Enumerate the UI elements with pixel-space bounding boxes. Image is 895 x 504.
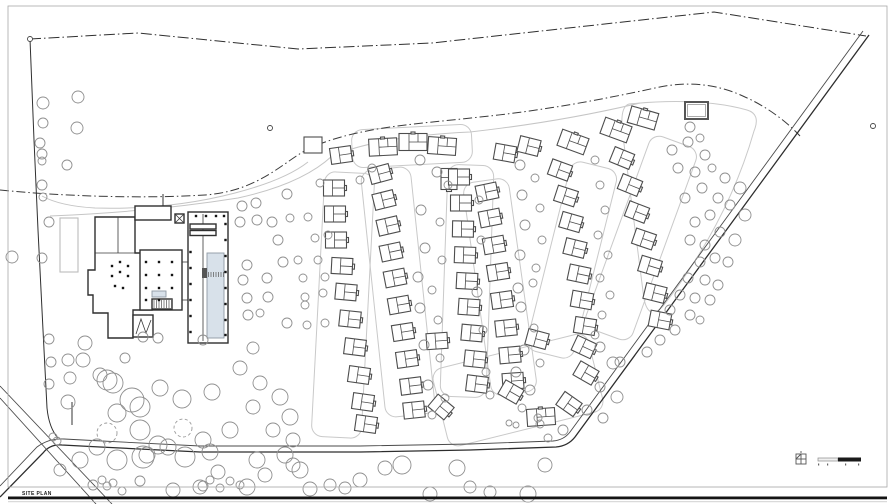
- house-unit: [304, 137, 322, 153]
- column-dot: [205, 215, 207, 217]
- house-unit: [490, 290, 515, 309]
- tree-circle: [299, 274, 307, 282]
- tree-circle: [680, 193, 690, 203]
- column-dot: [158, 287, 160, 289]
- column-dot: [224, 239, 226, 241]
- tree-circle: [304, 213, 312, 221]
- tree-circle: [655, 335, 665, 345]
- house-unit: [399, 132, 427, 151]
- house-unit: [329, 145, 354, 164]
- house-unit: [478, 208, 504, 228]
- legend-layer: [796, 452, 861, 466]
- tree-circle: [282, 318, 292, 328]
- house-unit: [454, 247, 478, 264]
- house-unit: [324, 180, 347, 196]
- building-entry-block: [135, 206, 171, 220]
- house-door: [665, 293, 668, 298]
- house-unit: [403, 401, 428, 419]
- tree-circle: [249, 452, 265, 468]
- house-door: [485, 358, 488, 363]
- house-door: [589, 274, 592, 279]
- site-boundary-left: [30, 39, 58, 438]
- tree-circle: [697, 183, 707, 193]
- proposed-tree-circle: [174, 419, 192, 437]
- pavilion: [685, 102, 708, 119]
- house-unit: [570, 290, 595, 310]
- column-dot: [119, 261, 121, 263]
- tree-circle: [238, 275, 248, 285]
- column-dot: [224, 223, 226, 225]
- tree-circle: [107, 450, 127, 470]
- column-dot: [171, 274, 173, 276]
- house-unit: [461, 324, 485, 342]
- tree-circle: [216, 484, 224, 492]
- house-unit: [426, 332, 450, 350]
- tree-circle: [713, 193, 723, 203]
- tree-circle: [316, 179, 324, 187]
- house-door: [394, 195, 397, 200]
- column-dot: [224, 271, 226, 273]
- tree-circle: [515, 250, 525, 260]
- tree-circle: [263, 292, 273, 302]
- house-door: [504, 240, 507, 245]
- house-door: [497, 187, 500, 192]
- tree-circle: [153, 333, 163, 343]
- column-dot: [224, 334, 226, 336]
- tree-circle: [130, 420, 150, 440]
- house-unit: [573, 316, 598, 335]
- house-door: [523, 378, 525, 383]
- house-unit: [643, 283, 669, 304]
- tree-circle: [211, 465, 225, 479]
- tree-circle: [356, 176, 364, 184]
- house-unit: [557, 128, 590, 155]
- tree-circle: [515, 160, 525, 170]
- house-unit: [368, 136, 397, 156]
- tree-circle: [436, 218, 444, 226]
- house-unit: [482, 235, 507, 255]
- tree-circle: [88, 480, 98, 490]
- house-unit: [517, 136, 543, 157]
- column-dot: [224, 287, 226, 289]
- north-symbol: [796, 452, 806, 464]
- tree-circle: [517, 190, 527, 200]
- house-unit: [449, 169, 472, 185]
- tree-circle: [538, 236, 546, 244]
- walkway-loop: [360, 166, 436, 418]
- column-dot: [224, 319, 226, 321]
- tree-circle: [538, 458, 552, 472]
- tree-circle: [513, 283, 523, 293]
- column-dot: [111, 275, 113, 277]
- tree-circle: [37, 253, 47, 263]
- tree-circle: [303, 482, 317, 496]
- boundary-marker: [268, 126, 273, 131]
- tree-circle: [282, 189, 292, 199]
- tree-circle: [506, 420, 512, 426]
- house-unit: [631, 228, 658, 251]
- house-unit: [563, 238, 589, 259]
- house-unit: [624, 201, 651, 224]
- site-plan-drawing: SITE PLAN: [0, 0, 895, 504]
- house-unit: [354, 415, 379, 434]
- column-dot: [224, 255, 226, 257]
- house-door: [508, 268, 511, 273]
- tree-circle: [233, 361, 247, 375]
- house-door: [487, 383, 490, 388]
- tree-circle: [598, 413, 608, 423]
- tree-circle: [607, 357, 619, 369]
- tree-circle: [37, 97, 49, 109]
- tree-circle: [520, 486, 536, 502]
- tree-circle: [324, 479, 336, 491]
- house-door: [515, 152, 518, 157]
- tree-circle: [267, 217, 277, 227]
- house-door: [472, 201, 474, 206]
- column-dot: [171, 287, 173, 289]
- house-unit: [427, 135, 456, 155]
- column-dot: [114, 285, 116, 287]
- house-unit: [475, 182, 501, 202]
- tree-circle: [393, 456, 411, 474]
- house-door: [475, 253, 477, 258]
- tree-circle: [700, 150, 710, 160]
- tree-circle: [595, 342, 605, 352]
- tree-circle: [428, 411, 436, 419]
- tree-circle: [226, 477, 234, 485]
- tree-circle: [37, 180, 47, 190]
- tree-circle: [286, 458, 300, 472]
- boundary-marker: [871, 124, 876, 129]
- house-door: [401, 247, 404, 252]
- tree-circle: [378, 461, 392, 475]
- tree-circle: [611, 391, 623, 403]
- column-dot: [171, 261, 173, 263]
- tree-circle: [242, 293, 252, 303]
- scale-tick: [818, 464, 819, 466]
- house-door: [447, 338, 449, 343]
- tree-circle: [729, 234, 741, 246]
- tree-circle: [266, 423, 280, 437]
- tree-circle: [71, 122, 83, 134]
- house-door: [670, 320, 673, 325]
- pool-step: [202, 268, 207, 278]
- tree-circle: [520, 220, 530, 230]
- canopy-bar: [190, 231, 216, 236]
- tree-circle: [61, 395, 75, 409]
- column-dot: [145, 274, 147, 276]
- column-dot: [145, 261, 147, 263]
- tree-circle: [321, 319, 329, 327]
- drawing-sheet: SITE PLAN: [0, 0, 895, 504]
- houses-layer: [304, 105, 674, 434]
- tree-circle: [516, 302, 526, 312]
- house-door: [470, 175, 472, 180]
- tree-circle: [301, 293, 309, 301]
- tree-circle: [416, 205, 426, 215]
- house-unit: [335, 283, 359, 301]
- house-door: [539, 146, 542, 151]
- house-unit: [609, 147, 636, 170]
- house-unit: [554, 185, 581, 207]
- boundary-marker: [28, 37, 33, 42]
- proposed-tree-circle: [97, 423, 117, 443]
- house-unit: [617, 174, 644, 197]
- tree-circle: [76, 353, 90, 367]
- tree-circle: [38, 118, 48, 128]
- tree-circle: [253, 376, 267, 390]
- tree-circle: [166, 483, 180, 497]
- tree-circle: [64, 372, 76, 384]
- boundary-layer: [30, 12, 866, 438]
- tree-circle: [723, 257, 733, 267]
- house-unit: [428, 394, 456, 421]
- tree-circle: [62, 160, 72, 170]
- column-dot: [189, 315, 191, 317]
- tree-circle: [175, 447, 195, 467]
- house-door: [477, 279, 479, 284]
- tree-circle: [72, 91, 84, 103]
- tree-circle: [256, 309, 264, 317]
- house-door: [538, 407, 542, 409]
- house-door: [424, 406, 427, 411]
- tree-circle: [278, 257, 288, 267]
- house-door: [373, 401, 376, 406]
- tree-circle: [37, 149, 47, 159]
- tree-circle: [529, 279, 537, 287]
- tree-circle: [734, 182, 746, 194]
- house-unit: [326, 232, 349, 248]
- tree-circle: [46, 357, 56, 367]
- house-unit: [344, 338, 369, 357]
- column-dot: [158, 299, 160, 301]
- tree-circle: [173, 390, 191, 408]
- tree-circle: [120, 388, 144, 412]
- column-dot: [189, 331, 191, 333]
- tree-circle: [236, 481, 244, 489]
- house-door: [473, 227, 475, 232]
- column-dot: [224, 303, 226, 305]
- canopy-bar: [190, 224, 216, 229]
- tree-circle: [685, 235, 695, 245]
- house-unit: [573, 361, 601, 386]
- drawing-title: SITE PLAN: [22, 491, 52, 497]
- tree-circle: [243, 310, 253, 320]
- house-door: [441, 136, 445, 138]
- column-dot: [189, 283, 191, 285]
- house-unit: [325, 206, 348, 222]
- tree-circle: [258, 468, 272, 482]
- tree-circle: [423, 380, 433, 390]
- tree-circle: [591, 156, 599, 164]
- house-unit: [391, 322, 416, 341]
- tree-circle: [739, 209, 751, 221]
- house-door: [479, 305, 481, 310]
- house-door: [347, 238, 349, 243]
- house-door: [380, 137, 384, 139]
- tree-circle: [525, 385, 535, 395]
- house-door: [405, 273, 408, 278]
- house-unit: [486, 262, 511, 281]
- title-bar-rule: [8, 497, 887, 500]
- house-door: [592, 299, 595, 304]
- tree-circle: [696, 316, 704, 324]
- house-door: [500, 213, 503, 218]
- house-unit: [567, 264, 593, 284]
- house-unit: [556, 391, 584, 417]
- tree-circle: [675, 290, 685, 300]
- house-door: [345, 186, 347, 191]
- house-door: [595, 325, 598, 330]
- column-dot: [189, 267, 191, 269]
- house-door: [376, 423, 379, 428]
- tree-circle: [428, 286, 436, 294]
- tree-circle: [135, 476, 145, 486]
- tree-circle: [594, 231, 602, 239]
- tree-circle: [294, 256, 302, 264]
- house-door: [643, 108, 647, 111]
- tree-circle: [685, 310, 695, 320]
- tree-circle: [420, 243, 430, 253]
- tree-circle: [582, 405, 592, 415]
- house-unit: [464, 350, 489, 368]
- tree-circle: [606, 291, 614, 299]
- parking-area: [60, 218, 78, 272]
- tree-circle: [670, 325, 680, 335]
- tree-circle: [598, 311, 606, 319]
- tree-circle: [273, 235, 283, 245]
- tree-circle: [690, 217, 700, 227]
- tree-circle: [708, 164, 716, 172]
- tree-circle: [518, 404, 526, 412]
- house-unit: [339, 310, 364, 328]
- house-unit: [547, 159, 574, 182]
- house-unit: [559, 211, 586, 233]
- house-door: [512, 296, 515, 301]
- tree-circle: [720, 173, 730, 183]
- tree-circle: [642, 347, 652, 357]
- house-unit: [458, 298, 482, 316]
- tree-circle: [272, 389, 288, 405]
- scale-tick: [845, 464, 846, 466]
- tree-circle: [286, 214, 294, 222]
- house-unit: [331, 257, 355, 274]
- house-door: [365, 346, 368, 351]
- tree-circle: [247, 342, 259, 354]
- tree-circle: [262, 273, 272, 283]
- tree-circle: [339, 482, 351, 494]
- tree-circle: [321, 273, 329, 281]
- column-dot: [111, 265, 113, 267]
- house-door: [351, 151, 354, 156]
- column-dot: [158, 261, 160, 263]
- tree-circle: [558, 425, 568, 435]
- tree-circle: [130, 397, 150, 417]
- house-door: [417, 355, 420, 360]
- tree-circle: [596, 181, 604, 189]
- tree-circle: [615, 357, 625, 367]
- tree-circle: [252, 215, 262, 225]
- tree-circle: [301, 301, 309, 309]
- tree-circle: [710, 253, 720, 263]
- house-door: [447, 190, 452, 192]
- column-dot: [127, 265, 129, 267]
- tree-circle: [532, 264, 540, 272]
- house-unit: [400, 377, 425, 396]
- tree-circle: [705, 210, 715, 220]
- scale-bar: [818, 458, 861, 466]
- tree-circle: [242, 260, 252, 270]
- tree-circle: [246, 400, 260, 414]
- house-door: [516, 324, 519, 329]
- house-unit: [379, 242, 405, 262]
- tree-circle: [486, 391, 494, 399]
- house-unit: [347, 366, 372, 385]
- house-door: [360, 318, 363, 323]
- tree-circle: [282, 409, 298, 425]
- tree-circle: [149, 436, 167, 454]
- tree-circle: [35, 138, 45, 148]
- tree-circle: [415, 155, 425, 165]
- scale-tick: [858, 464, 859, 466]
- column-dot: [158, 274, 160, 276]
- tree-circle: [62, 354, 74, 366]
- house-unit: [466, 375, 491, 394]
- house-unit: [452, 221, 475, 237]
- tree-circle: [705, 295, 715, 305]
- house-door: [398, 221, 401, 226]
- tree-circle: [415, 303, 425, 313]
- house-door: [369, 374, 372, 379]
- house-door: [585, 248, 588, 253]
- column-dot: [195, 215, 197, 217]
- tree-circle: [120, 353, 130, 363]
- tree-circle: [72, 452, 88, 468]
- tree-circle: [667, 145, 677, 155]
- tree-circle: [54, 464, 66, 476]
- column-dot: [122, 287, 124, 289]
- tree-circle: [484, 486, 496, 498]
- tree-circle: [700, 275, 710, 285]
- house-unit: [526, 406, 555, 426]
- tree-circle: [222, 422, 238, 438]
- column-dot: [145, 287, 147, 289]
- site-boundary-top: [30, 12, 866, 49]
- tree-circle: [434, 316, 442, 324]
- house-door: [413, 328, 416, 333]
- tree-circle: [353, 473, 367, 487]
- tree-circle: [536, 359, 544, 367]
- tree-circle: [286, 433, 300, 447]
- tree-circle: [78, 336, 92, 350]
- tree-circle: [673, 163, 683, 173]
- house-unit: [495, 319, 520, 337]
- house-door: [346, 212, 348, 217]
- tree-circle: [311, 234, 319, 242]
- house-unit: [372, 189, 398, 210]
- column-dot: [189, 299, 191, 301]
- tree-circle: [108, 404, 126, 422]
- house-unit: [451, 195, 474, 211]
- house-unit: [376, 215, 402, 236]
- tree-circle: [38, 157, 46, 165]
- house-door: [356, 290, 358, 295]
- tree-circle: [277, 447, 293, 463]
- tree-circle: [44, 334, 54, 344]
- column-dot: [119, 271, 121, 273]
- house-unit: [387, 295, 412, 315]
- tree-circle: [303, 321, 311, 329]
